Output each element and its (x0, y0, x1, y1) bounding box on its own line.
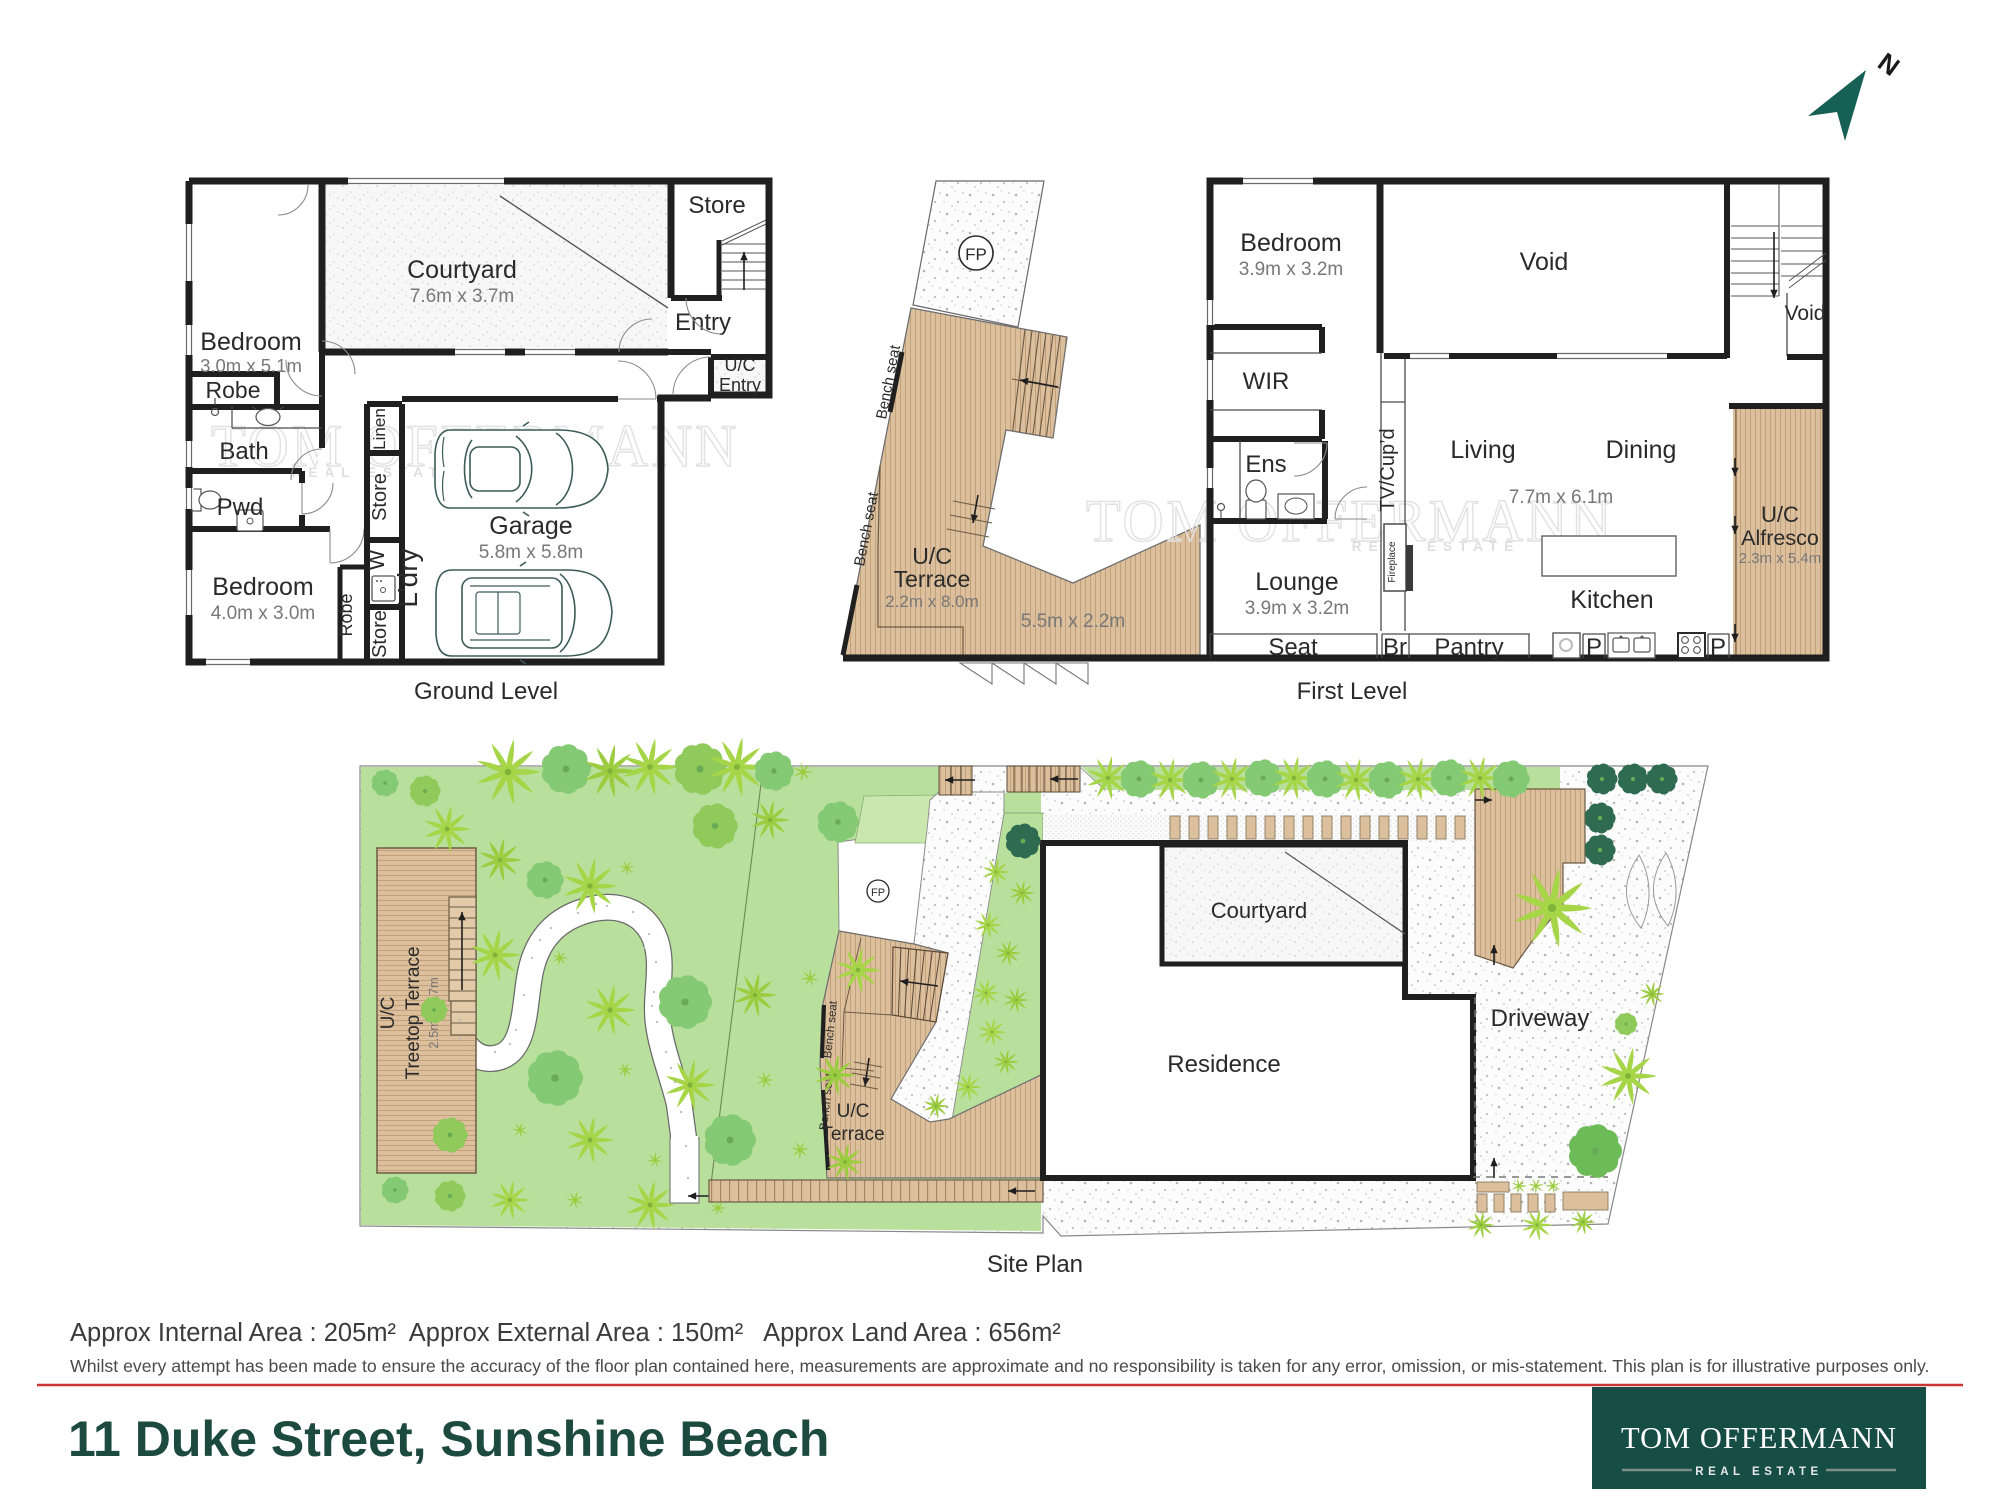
svg-text:U/C: U/C (725, 355, 756, 375)
svg-text:Bedroom: Bedroom (212, 573, 313, 601)
svg-text:Robe: Robe (206, 377, 261, 403)
svg-text:Store: Store (369, 610, 391, 658)
svg-text:11 Duke Street, Sunshine Beach: 11 Duke Street, Sunshine Beach (68, 1411, 829, 1467)
svg-text:Bedroom: Bedroom (200, 328, 301, 356)
svg-text:Living: Living (1450, 436, 1515, 464)
svg-text:WIR: WIR (1243, 368, 1290, 395)
svg-text:Courtyard: Courtyard (1211, 898, 1308, 923)
svg-text:Robe: Robe (336, 593, 356, 636)
svg-text:U/C: U/C (1761, 502, 1799, 527)
svg-text:2.2m x 8.0m: 2.2m x 8.0m (885, 592, 979, 611)
svg-text:FP: FP (871, 887, 885, 899)
svg-text:First Level: First Level (1297, 678, 1408, 705)
svg-text:U/C: U/C (837, 1101, 870, 1122)
svg-text:Linen: Linen (370, 408, 389, 450)
svg-text:L’dry: L’dry (392, 548, 423, 607)
svg-text:Void: Void (1785, 302, 1826, 325)
svg-text:REAL ESTATE: REAL ESTATE (1695, 1466, 1822, 1478)
svg-text:Pantry: Pantry (1434, 634, 1503, 661)
svg-text:P: P (1586, 634, 1602, 661)
svg-text:FP: FP (965, 245, 987, 264)
svg-text:Fireplace: Fireplace (1387, 541, 1398, 583)
svg-text:W: W (364, 549, 389, 570)
svg-text:REAL ESTATE: REAL ESTATE (1352, 539, 1521, 554)
svg-text:Treetop Terrace: Treetop Terrace (403, 946, 424, 1079)
svg-text:Kitchen: Kitchen (1570, 586, 1653, 614)
svg-text:Courtyard: Courtyard (407, 256, 517, 284)
svg-text:Ground Level: Ground Level (414, 678, 558, 705)
svg-text:Seat: Seat (1268, 634, 1318, 661)
svg-text:3.9m x 3.2m: 3.9m x 3.2m (1239, 259, 1344, 280)
svg-text:4.0m x 3.0m: 4.0m x 3.0m (211, 603, 316, 624)
svg-text:3.9m x 3.2m: 3.9m x 3.2m (1245, 598, 1350, 619)
svg-text:Approx Internal Area : 205m²: Approx Internal Area : 205m² Approx Exte… (70, 1319, 1061, 1347)
svg-text:TV/Cup’d: TV/Cup’d (1377, 428, 1399, 511)
svg-text:Terrace: Terrace (894, 566, 971, 592)
svg-text:Entry: Entry (675, 309, 731, 336)
svg-text:Entry: Entry (719, 375, 761, 395)
svg-text:P: P (1710, 634, 1726, 661)
svg-text:Garage: Garage (489, 512, 572, 540)
svg-text:Ens: Ens (1245, 451, 1286, 478)
svg-text:Bedroom: Bedroom (1240, 229, 1341, 257)
svg-text:5.5m x 2.2m: 5.5m x 2.2m (1021, 611, 1126, 632)
svg-text:Terrace: Terrace (821, 1124, 884, 1145)
svg-text:U/C: U/C (378, 997, 399, 1030)
svg-text:Pwd: Pwd (217, 494, 264, 521)
svg-text:5.8m x 5.8m: 5.8m x 5.8m (479, 542, 584, 563)
svg-text:Driveway: Driveway (1491, 1005, 1590, 1032)
svg-text:Lounge: Lounge (1255, 568, 1338, 596)
svg-text:Store: Store (688, 192, 745, 219)
svg-text:Void: Void (1520, 248, 1569, 276)
svg-text:Alfresco: Alfresco (1741, 526, 1819, 550)
svg-text:Store: Store (369, 473, 391, 521)
svg-text:Whilst every attempt has been: Whilst every attempt has been made to en… (70, 1356, 1929, 1376)
svg-text:Bath: Bath (219, 438, 268, 465)
svg-text:7.7m x 6.1m: 7.7m x 6.1m (1509, 487, 1614, 508)
svg-text:TOM OFFERMANN: TOM OFFERMANN (1621, 1421, 1897, 1455)
svg-text:2.3m x 5.4m: 2.3m x 5.4m (1739, 550, 1822, 567)
svg-text:Residence: Residence (1167, 1051, 1280, 1078)
svg-text:Br: Br (1383, 634, 1407, 661)
svg-text:Dining: Dining (1606, 436, 1677, 464)
svg-text:Site Plan: Site Plan (987, 1251, 1083, 1278)
svg-text:7.6m x 3.7m: 7.6m x 3.7m (410, 286, 515, 307)
